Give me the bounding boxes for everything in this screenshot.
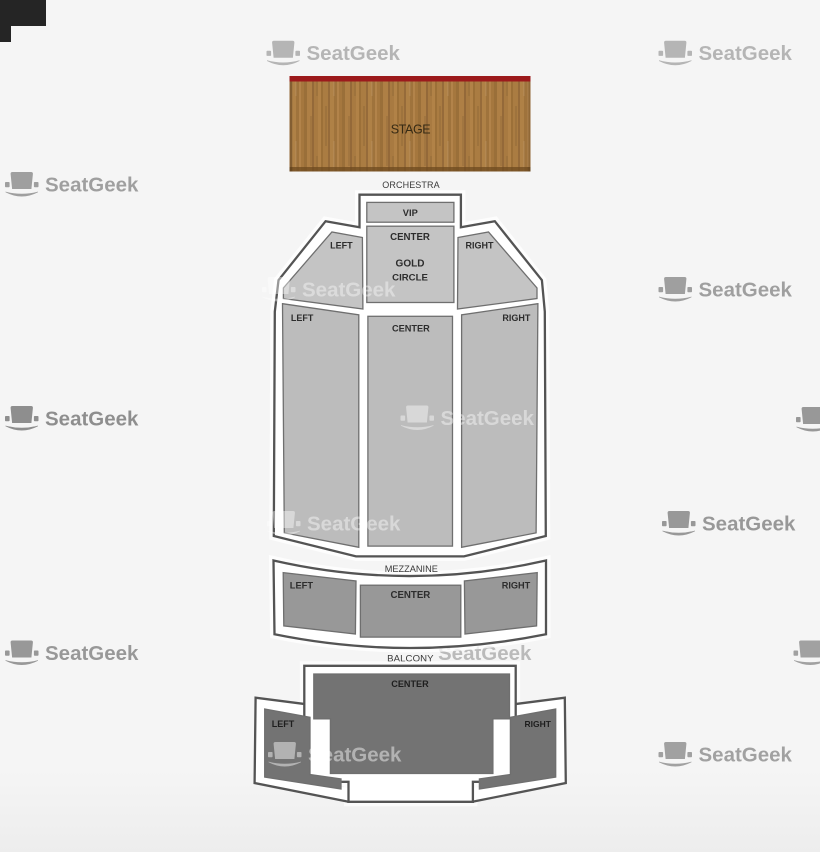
svg-text:LEFT: LEFT [291, 313, 314, 323]
svg-text:ORCHESTRA: ORCHESTRA [382, 180, 439, 190]
svg-text:RIGHT: RIGHT [502, 313, 531, 323]
svg-text:CIRCLE: CIRCLE [392, 273, 428, 284]
svg-text:LEFT: LEFT [330, 241, 353, 251]
svg-text:CENTER: CENTER [392, 323, 430, 333]
svg-text:VIP: VIP [403, 208, 418, 218]
svg-text:LEFT: LEFT [272, 719, 295, 729]
svg-text:LEFT: LEFT [290, 580, 314, 590]
svg-text:CENTER: CENTER [391, 679, 429, 689]
svg-text:RIGHT: RIGHT [466, 241, 495, 251]
svg-text:GOLD: GOLD [396, 259, 425, 270]
svg-text:CENTER: CENTER [390, 232, 430, 243]
svg-text:MEZZANINE: MEZZANINE [385, 564, 438, 574]
svg-text:CENTER: CENTER [390, 590, 430, 601]
svg-text:RIGHT: RIGHT [502, 580, 531, 590]
svg-text:RIGHT: RIGHT [524, 719, 551, 729]
svg-text:STAGE: STAGE [391, 123, 431, 137]
